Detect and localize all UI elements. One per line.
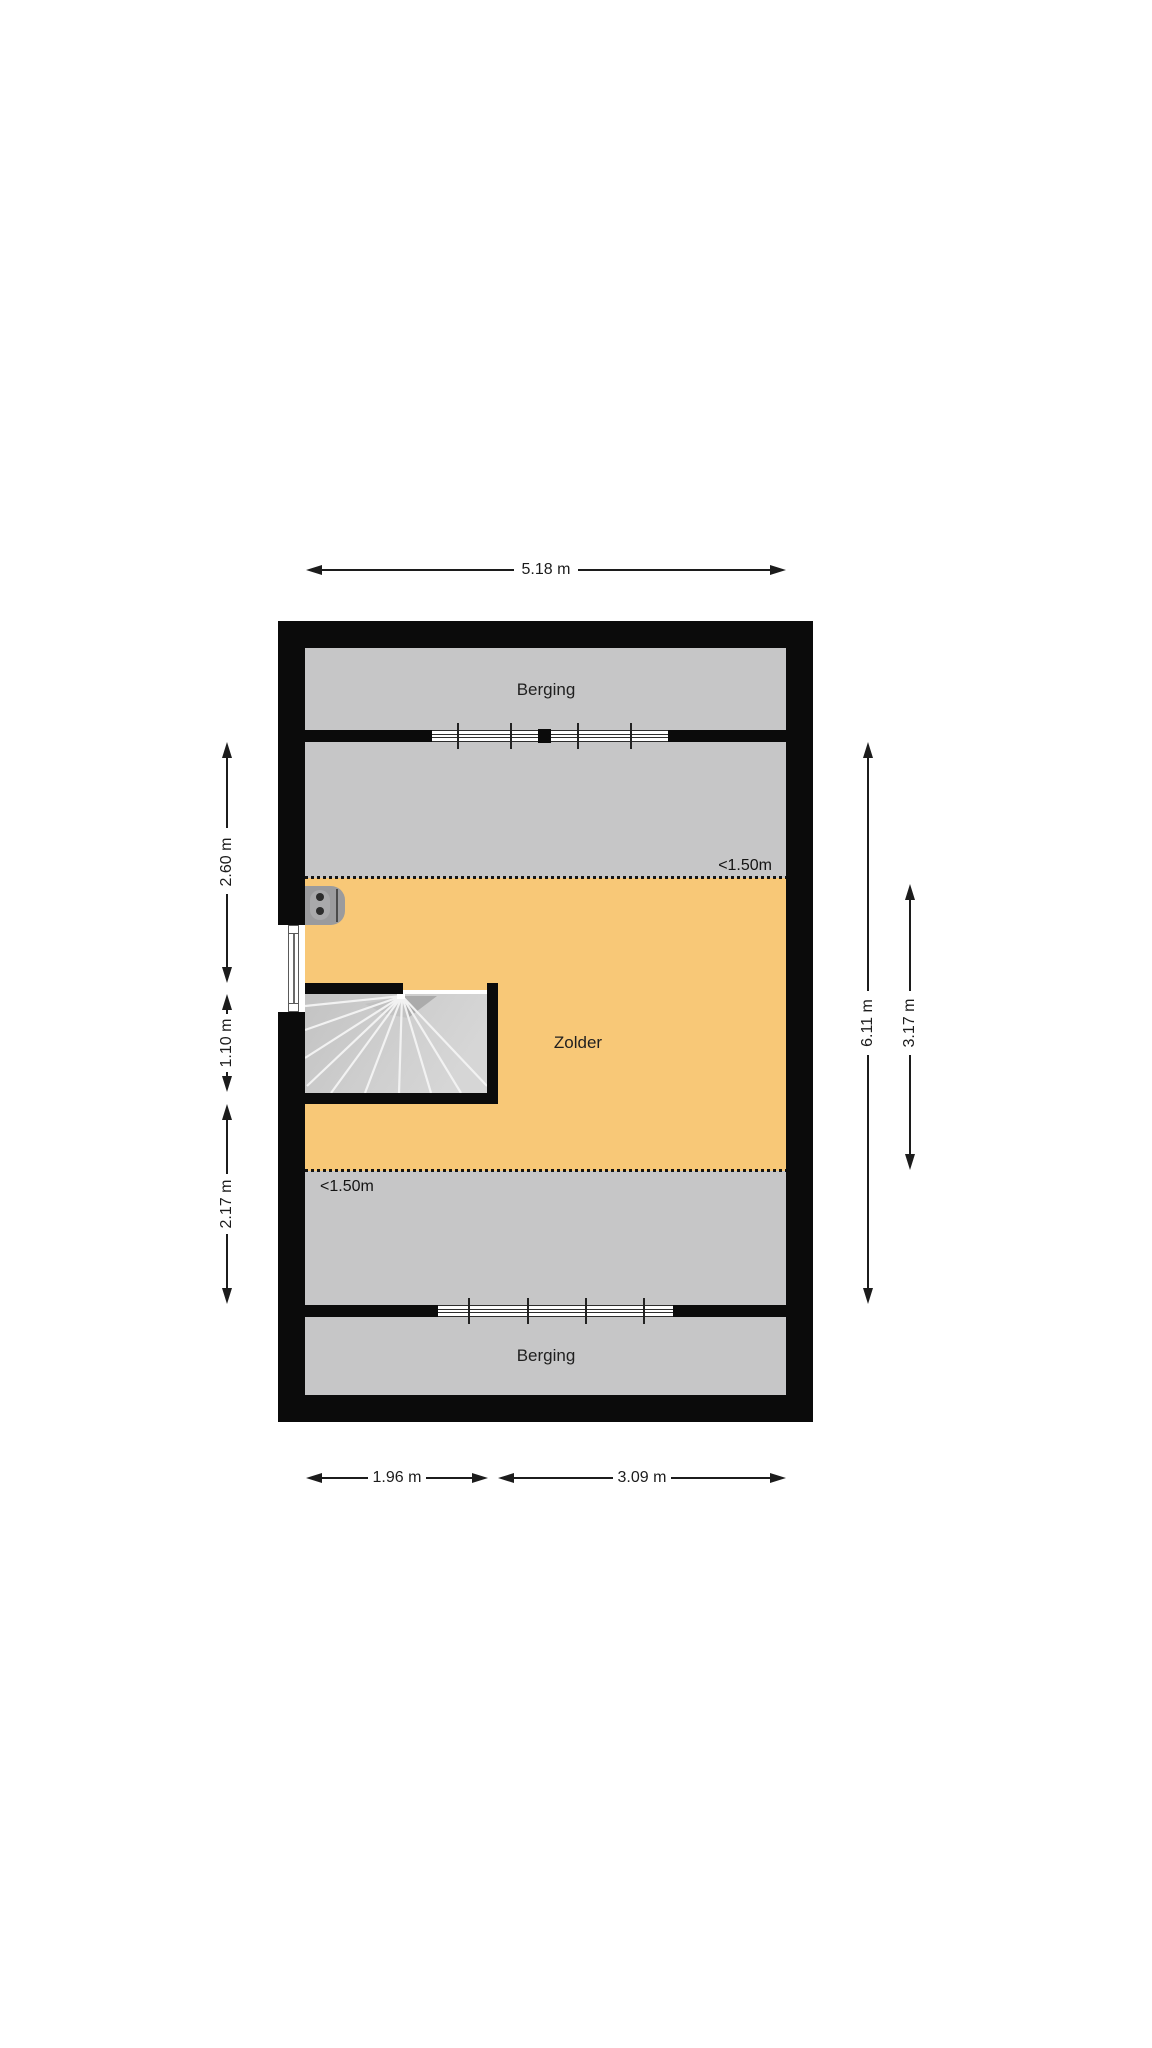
dim-arrowhead — [770, 1473, 786, 1483]
wall-right — [786, 648, 813, 1395]
dim-arrowhead — [222, 967, 232, 983]
railing-tick — [585, 1298, 587, 1324]
dim-line — [867, 1055, 869, 1290]
dim-line — [226, 1234, 228, 1290]
window-opening — [278, 925, 305, 1012]
railing-post — [538, 729, 551, 743]
dim-arrowhead — [222, 1076, 232, 1092]
dim-line — [226, 894, 228, 968]
stair-wall-right — [487, 983, 498, 1104]
dim-arrowhead — [770, 565, 786, 575]
height-marker-upper: <1.50m — [652, 858, 772, 874]
railing-tick — [527, 1298, 529, 1324]
railing-tick — [510, 723, 512, 749]
partition-bottom-railing — [438, 1305, 673, 1317]
partition-bottom-wall-left — [305, 1305, 438, 1317]
wall-left-upper — [278, 648, 305, 925]
floor-plan-canvas: Berging Zolder Berging <1.50m <1.50m 5.1… — [0, 0, 1152, 2048]
wall-left-lower — [278, 1012, 305, 1395]
dim-arrowhead — [222, 1288, 232, 1304]
dim-arrowhead — [472, 1473, 488, 1483]
dim-arrowhead — [905, 1154, 915, 1170]
room-label-zolder: Zolder — [518, 1034, 638, 1052]
room-label-berging-top: Berging — [486, 681, 606, 699]
dim-line — [909, 1055, 911, 1155]
partition-top-wall-left — [305, 730, 432, 742]
spiral-staircase-drawing — [305, 994, 487, 1093]
railing-tick — [457, 723, 459, 749]
dim-arrowhead — [863, 1288, 873, 1304]
railing-tick — [468, 1298, 470, 1324]
room-label-berging-bottom: Berging — [486, 1347, 606, 1365]
dim-line — [671, 1477, 772, 1479]
railing-tick — [577, 723, 579, 749]
dim-line — [320, 569, 514, 571]
height-limit-line-upper — [305, 876, 786, 879]
window-frame-line — [289, 1003, 298, 1004]
wall-bottom — [278, 1395, 813, 1422]
window-glass — [288, 925, 299, 1012]
stair-wall-top — [305, 983, 403, 994]
wall-top — [278, 621, 813, 648]
dim-line — [578, 569, 772, 571]
dim-line — [867, 756, 869, 991]
height-marker-lower: <1.50m — [320, 1179, 440, 1195]
railing-tick — [643, 1298, 645, 1324]
railing-tick — [630, 723, 632, 749]
height-limit-line-lower — [305, 1169, 786, 1172]
stair-wall-bottom — [305, 1093, 498, 1104]
ventilation-unit-edge — [336, 889, 338, 922]
ventilation-unit — [305, 886, 345, 925]
partition-top-railing — [432, 730, 668, 742]
ventilation-unit-knob — [316, 907, 324, 915]
partition-bottom-wall-right — [673, 1305, 786, 1317]
window-pane-line — [293, 934, 295, 1003]
partition-top-wall-right — [668, 730, 786, 742]
dim-line — [426, 1477, 474, 1479]
spiral-staircase — [305, 994, 487, 1093]
ventilation-unit-knob — [316, 893, 324, 901]
